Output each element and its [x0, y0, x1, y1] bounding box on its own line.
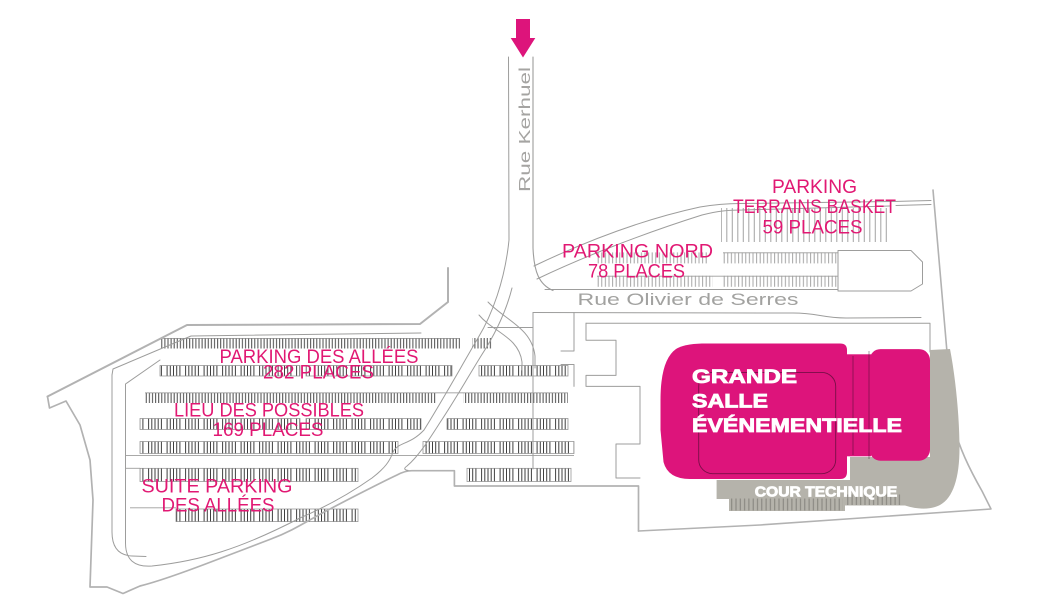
svg-text:282 PLACES: 282 PLACES	[263, 363, 374, 384]
svg-text:78 PLACES: 78 PLACES	[588, 261, 685, 282]
svg-text:PARKING: PARKING	[772, 177, 857, 198]
svg-text:Rue Kerhuel: Rue Kerhuel	[517, 67, 534, 192]
svg-text:169 PLACES: 169 PLACES	[213, 420, 324, 441]
svg-text:LIEU DES POSSIBLES: LIEU DES POSSIBLES	[174, 401, 364, 422]
svg-text:COUR TECHNIQUE: COUR TECHNIQUE	[755, 485, 898, 501]
svg-text:GRANDE: GRANDE	[692, 367, 797, 388]
svg-text:Rue Olivier de Serres: Rue Olivier de Serres	[578, 291, 799, 309]
svg-text:SUITE PARKING: SUITE PARKING	[142, 476, 293, 497]
svg-text:TERRAINS BASKET: TERRAINS BASKET	[733, 197, 896, 218]
svg-text:PARKING NORD: PARKING NORD	[562, 242, 713, 263]
svg-text:59 PLACES: 59 PLACES	[763, 218, 863, 239]
svg-text:ÉVÉNEMENTIELLE: ÉVÉNEMENTIELLE	[692, 415, 902, 437]
svg-text:DES ALLÉES: DES ALLÉES	[162, 495, 275, 516]
svg-text:SALLE: SALLE	[692, 392, 768, 413]
